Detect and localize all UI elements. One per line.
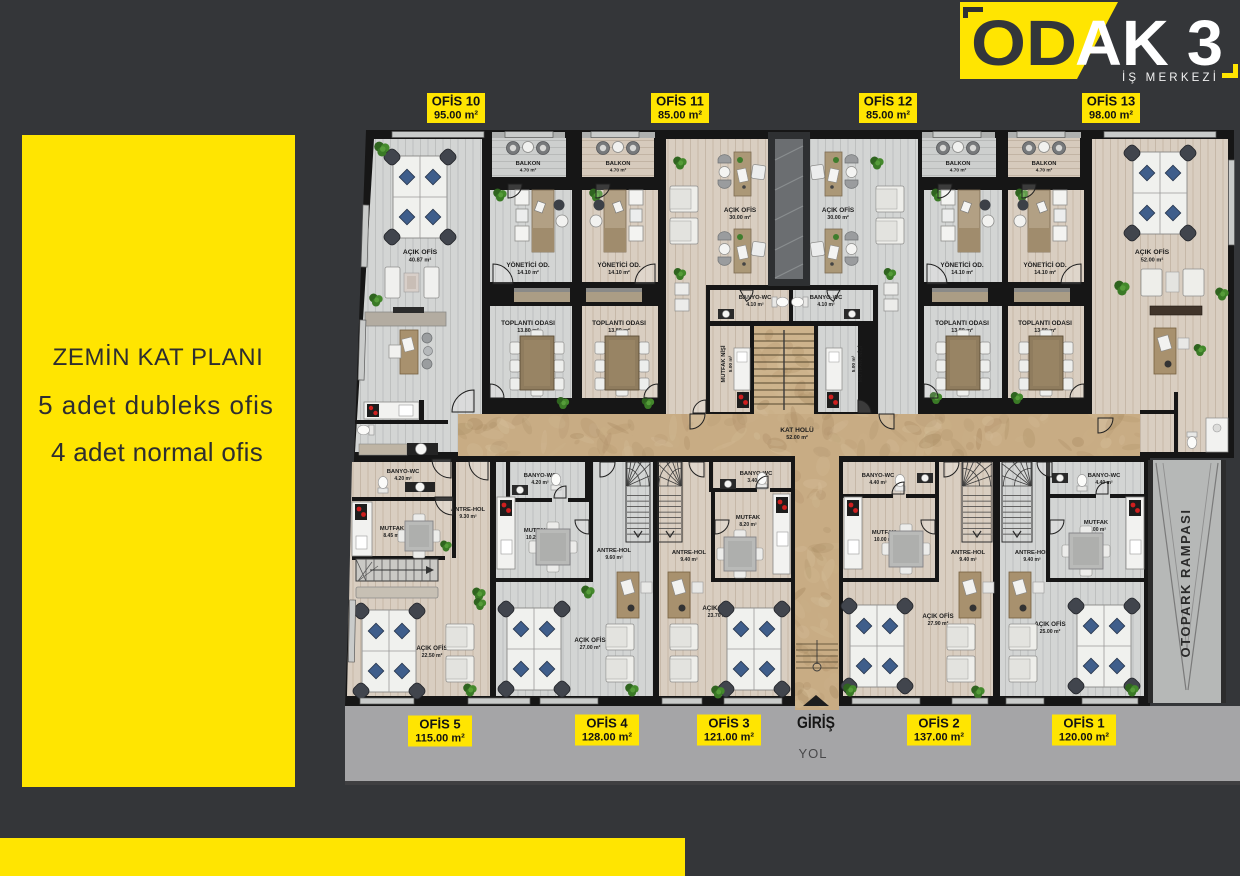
svg-text:14.10 m²: 14.10 m² <box>1034 270 1056 276</box>
svg-text:YÖNETİCİ OD.: YÖNETİCİ OD. <box>597 260 641 269</box>
svg-text:22.50 m²: 22.50 m² <box>422 653 443 659</box>
svg-text:BALKON: BALKON <box>946 161 971 167</box>
svg-text:İŞ MERKEZİ: İŞ MERKEZİ <box>1122 71 1219 84</box>
svg-text:BANYO-WC: BANYO-WC <box>1088 473 1121 479</box>
svg-text:5 adet dubleks ofis: 5 adet dubleks ofis <box>38 390 274 420</box>
svg-text:8.20 m²: 8.20 m² <box>739 522 757 528</box>
svg-text:OFİS 4: OFİS 4 <box>586 716 628 731</box>
svg-text:AÇIK OFİS: AÇIK OFİS <box>922 613 953 620</box>
svg-text:85.00 m²: 85.00 m² <box>658 110 702 122</box>
svg-text:115.00 m²: 115.00 m² <box>415 733 465 745</box>
svg-text:OD: OD <box>971 7 1077 79</box>
svg-text:OFİS 13: OFİS 13 <box>1087 94 1135 109</box>
svg-text:AÇIK OFİS: AÇIK OFİS <box>416 645 447 652</box>
svg-text:4 adet normal ofis: 4 adet normal ofis <box>51 437 263 467</box>
svg-text:4.10 m²: 4.10 m² <box>746 302 764 308</box>
svg-text:BANYO-WC: BANYO-WC <box>387 469 420 475</box>
svg-text:4.70 m²: 4.70 m² <box>520 168 537 174</box>
svg-text:OFİS 11: OFİS 11 <box>656 94 704 109</box>
svg-text:ANTRE-HOL: ANTRE-HOL <box>451 507 486 513</box>
svg-text:95.00 m²: 95.00 m² <box>434 110 478 122</box>
svg-text:BALKON: BALKON <box>516 161 541 167</box>
svg-text:BANYO-WC: BANYO-WC <box>810 295 843 301</box>
svg-text:5.00 m²: 5.00 m² <box>728 355 734 372</box>
svg-text:137.00 m²: 137.00 m² <box>914 732 964 744</box>
svg-text:BALKON: BALKON <box>606 161 631 167</box>
svg-text:85.00 m²: 85.00 m² <box>866 110 910 122</box>
svg-text:120.00 m²: 120.00 m² <box>1059 732 1109 744</box>
svg-text:AÇIK OFİS: AÇIK OFİS <box>724 205 757 214</box>
svg-text:MUTFAK NİŞİ: MUTFAK NİŞİ <box>857 345 864 382</box>
svg-text:OFİS 1: OFİS 1 <box>1063 716 1104 731</box>
svg-text:OFİS 12: OFİS 12 <box>864 94 912 109</box>
svg-text:9.60 m²: 9.60 m² <box>605 555 623 561</box>
svg-text:AÇIK OFİS: AÇIK OFİS <box>1135 248 1170 256</box>
svg-text:OFİS 2: OFİS 2 <box>918 716 959 731</box>
svg-text:MUTFAK: MUTFAK <box>1084 520 1109 526</box>
svg-text:AÇIK OFİS: AÇIK OFİS <box>822 205 855 214</box>
svg-text:27.90 m²: 27.90 m² <box>928 621 949 627</box>
svg-text:TOPLANTI ODASI: TOPLANTI ODASI <box>592 320 646 327</box>
svg-text:AÇIK OFİS: AÇIK OFİS <box>403 248 438 256</box>
svg-text:OFİS 3: OFİS 3 <box>708 716 749 731</box>
svg-text:YÖNETİCİ OD.: YÖNETİCİ OD. <box>506 260 550 269</box>
svg-text:98.00 m²: 98.00 m² <box>1089 110 1133 122</box>
svg-text:TOPLANTI ODASI: TOPLANTI ODASI <box>935 320 989 327</box>
svg-text:KAT HOLÜ: KAT HOLÜ <box>780 425 814 434</box>
svg-text:14.10 m²: 14.10 m² <box>951 270 973 276</box>
svg-text:4.10 m²: 4.10 m² <box>817 302 835 308</box>
svg-text:30.00 m²: 30.00 m² <box>729 215 751 221</box>
svg-text:52.00 m²: 52.00 m² <box>786 435 808 441</box>
svg-text:4.70 m²: 4.70 m² <box>1036 168 1053 174</box>
svg-text:4.20 m²: 4.20 m² <box>394 476 412 482</box>
svg-text:4.70 m²: 4.70 m² <box>610 168 627 174</box>
svg-text:14.10 m²: 14.10 m² <box>608 270 630 276</box>
svg-text:25.00 m²: 25.00 m² <box>1040 629 1061 635</box>
svg-text:MUTFAK NİŞİ: MUTFAK NİŞİ <box>720 345 727 382</box>
svg-text:ANTRE-HOL: ANTRE-HOL <box>597 548 632 554</box>
svg-text:AÇIK OFİS: AÇIK OFİS <box>1034 621 1065 628</box>
svg-text:MUTFAK: MUTFAK <box>736 515 761 521</box>
svg-text:AK 3: AK 3 <box>1075 7 1223 79</box>
svg-text:YÖNETİCİ OD.: YÖNETİCİ OD. <box>1023 260 1067 269</box>
svg-text:4.70 m²: 4.70 m² <box>950 168 967 174</box>
svg-text:YÖNETİCİ OD.: YÖNETİCİ OD. <box>940 260 984 269</box>
svg-text:4.40 m²: 4.40 m² <box>869 480 887 486</box>
svg-text:14.10 m²: 14.10 m² <box>517 270 539 276</box>
svg-text:30.00 m²: 30.00 m² <box>827 215 849 221</box>
svg-text:40.87 m²: 40.87 m² <box>409 256 432 263</box>
svg-text:ZEMİN KAT PLANI: ZEMİN KAT PLANI <box>53 344 264 371</box>
svg-text:9.30 m²: 9.30 m² <box>459 514 477 520</box>
svg-text:ANTRE-HOL: ANTRE-HOL <box>951 550 986 556</box>
svg-text:YOL: YOL <box>798 746 827 761</box>
svg-text:9.40 m²: 9.40 m² <box>959 557 977 563</box>
svg-text:ANTRE-HOL: ANTRE-HOL <box>672 550 707 556</box>
svg-text:OFİS 10: OFİS 10 <box>432 94 480 109</box>
svg-text:5.00 m²: 5.00 m² <box>851 355 857 372</box>
svg-text:GİRİŞ: GİRİŞ <box>797 713 835 732</box>
svg-text:128.00 m²: 128.00 m² <box>582 732 632 744</box>
svg-text:27.00 m²: 27.00 m² <box>580 645 601 651</box>
svg-text:52.00 m²: 52.00 m² <box>1141 256 1164 263</box>
svg-text:BALKON: BALKON <box>1032 161 1057 167</box>
svg-text:OFİS 5: OFİS 5 <box>419 717 460 732</box>
svg-text:121.00 m²: 121.00 m² <box>704 732 754 744</box>
svg-text:ANTRE-HOL: ANTRE-HOL <box>1015 550 1050 556</box>
svg-text:9.40 m²: 9.40 m² <box>680 557 698 563</box>
svg-text:BANYO-WC: BANYO-WC <box>862 473 895 479</box>
svg-text:4.20 m²: 4.20 m² <box>531 480 549 486</box>
svg-text:9.40 m²: 9.40 m² <box>1023 557 1041 563</box>
svg-text:OTOPARK RAMPASI: OTOPARK RAMPASI <box>1178 509 1193 658</box>
svg-text:AÇIK OFİS: AÇIK OFİS <box>574 637 605 644</box>
svg-text:TOPLANTI ODASI: TOPLANTI ODASI <box>501 320 555 327</box>
svg-text:TOPLANTI ODASI: TOPLANTI ODASI <box>1018 320 1072 327</box>
